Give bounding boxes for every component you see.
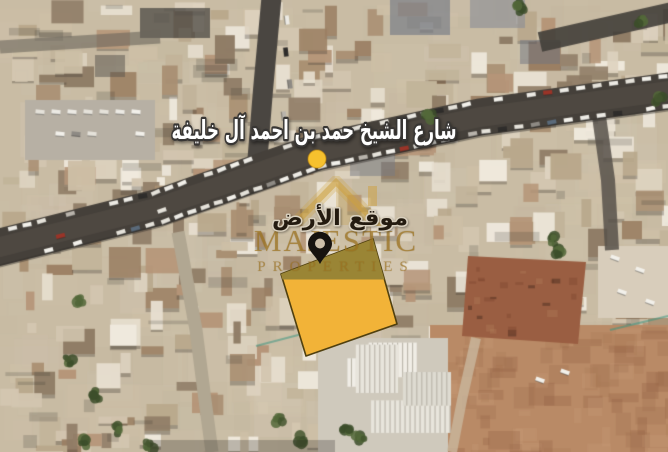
satellite-map-view: MAJESTIC PROPERTIES شارع الشيخ حمد بن اح… xyxy=(0,0,668,452)
satellite-basemap-image xyxy=(0,0,668,452)
